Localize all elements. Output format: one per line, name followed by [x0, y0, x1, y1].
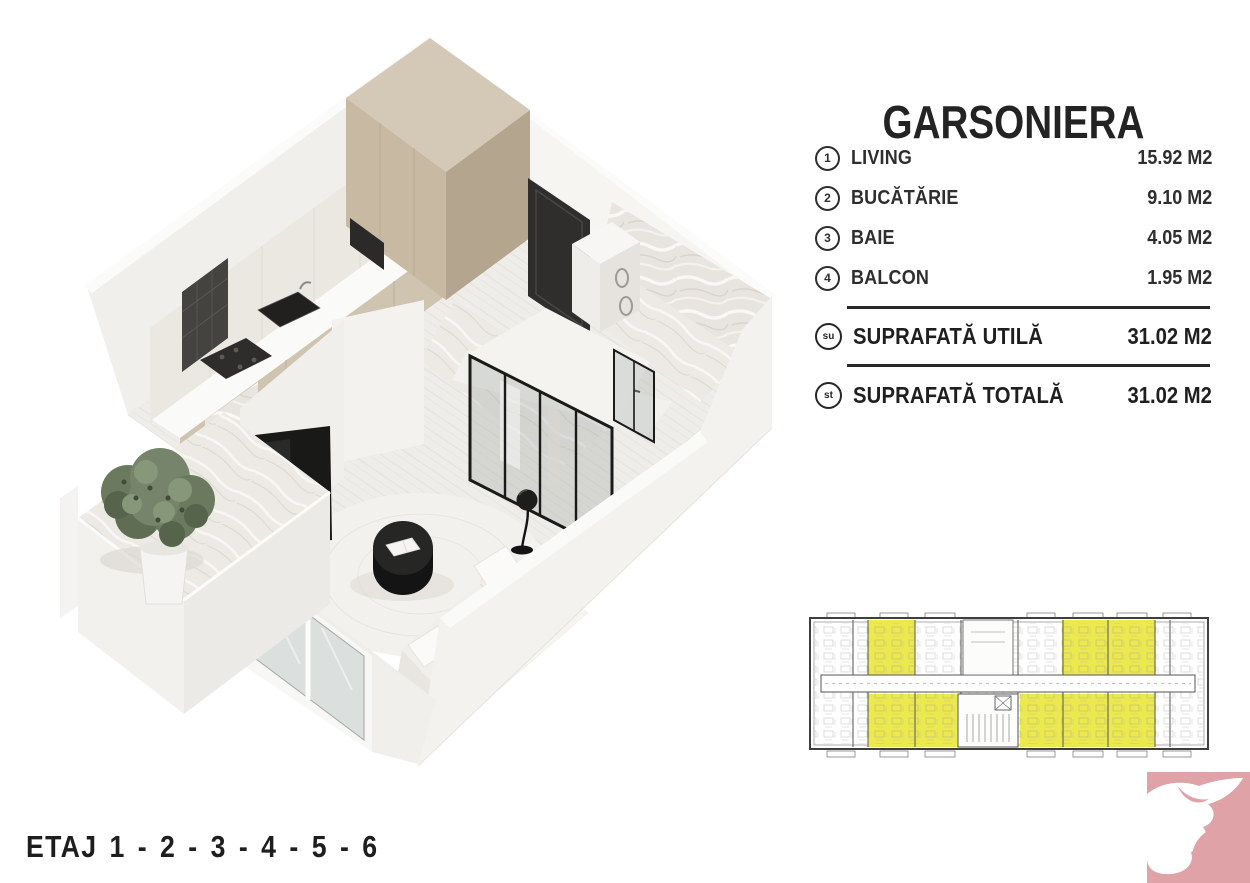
plant-pot: [140, 548, 188, 604]
room-area: 15.92 M2: [1137, 147, 1212, 170]
divider: [847, 306, 1210, 309]
building-floor-plan: [805, 612, 1215, 760]
room-label: LIVING: [851, 147, 912, 170]
total-label: SUPRAFATĂ UTILĂ: [853, 323, 1043, 350]
total-row-utila: su SUPRAFATĂ UTILĂ 31.02 M2: [815, 320, 1212, 352]
circled-su-icon: su: [815, 323, 842, 350]
entrance-lobby: [963, 620, 1013, 675]
circled-2-icon: 2: [815, 186, 840, 211]
circled-st-icon: st: [815, 382, 842, 409]
total-row-totala: st SUPRAFATĂ TOTALĂ 31.02 M2: [815, 379, 1212, 411]
room-label: BAIE: [851, 227, 895, 250]
circled-3-icon: 3: [815, 226, 840, 251]
room-area: 4.05 M2: [1147, 227, 1212, 250]
room-row-baie: 3 BAIE 4.05 M2: [815, 218, 1212, 258]
partition-wall: [332, 300, 424, 464]
room-row-bucatarie: 2 BUCĂTĂRIE 9.10 M2: [815, 178, 1212, 218]
room-label: BALCON: [851, 267, 929, 290]
room-area: 9.10 M2: [1147, 187, 1212, 210]
flyer-canvas: GARSONIERA 1 LIVING 15.92 M2 2 BUCĂTĂRIE…: [0, 0, 1250, 883]
circled-1-icon: 1: [815, 146, 840, 171]
logo: [1147, 772, 1250, 883]
circled-4-icon: 4: [815, 266, 840, 291]
room-row-balcon: 4 BALCON 1.95 M2: [815, 258, 1212, 298]
apartment-3d-render: [40, 20, 780, 800]
total-area: 31.02 M2: [1128, 323, 1212, 350]
room-row-living: 1 LIVING 15.92 M2: [815, 138, 1212, 178]
room-area: 1.95 M2: [1147, 267, 1212, 290]
total-area: 31.02 M2: [1128, 382, 1212, 409]
total-label: SUPRAFATĂ TOTALĂ: [853, 382, 1064, 409]
floors-line: ETAJ 1 - 2 - 3 - 4 - 5 - 6: [26, 829, 378, 865]
room-label: BUCĂTĂRIE: [851, 187, 959, 210]
divider: [847, 364, 1210, 367]
